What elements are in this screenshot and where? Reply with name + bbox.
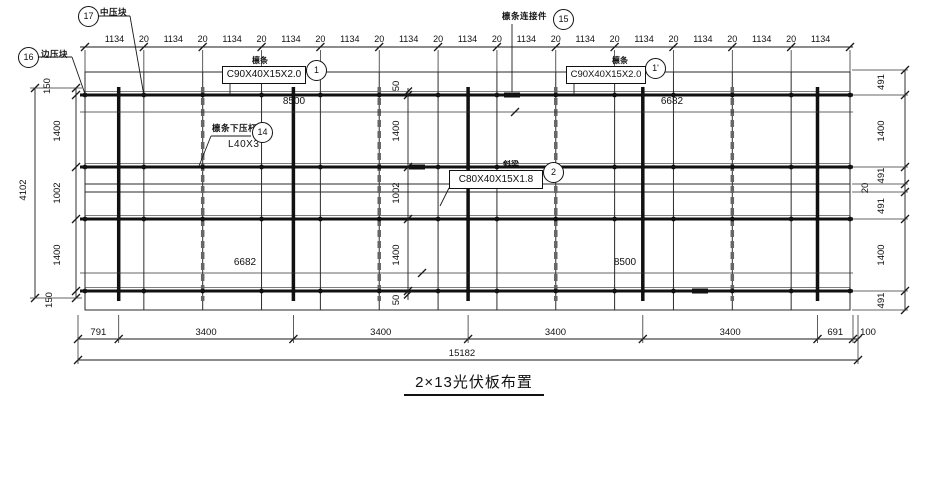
clamp-dot: [318, 93, 323, 98]
dim-label-bottom: 791: [90, 327, 106, 338]
clamp-dot: [291, 217, 296, 222]
clamp-dot: [83, 217, 88, 222]
dim-label-top: 1134: [164, 34, 183, 44]
dim-label-top-gap: 20: [786, 34, 796, 44]
clamp-dot: [495, 289, 500, 294]
clamp-dot: [553, 289, 558, 294]
clamp-dot: [612, 165, 617, 170]
dim-label-top: 1134: [811, 34, 830, 44]
clamp-dot: [466, 217, 471, 222]
purlin-brace-bubble: 14: [252, 122, 273, 143]
leader-purlin-brace: [199, 136, 211, 166]
clamp-dot: [116, 93, 121, 98]
clamp-dot: [815, 93, 820, 98]
dim-label-mid: 50: [391, 295, 402, 306]
clamp-dot: [200, 93, 205, 98]
clamp-dot: [848, 217, 853, 222]
clamp-dot: [116, 289, 121, 294]
rafter-spec: C80X40X15X1.8: [449, 170, 543, 189]
clamp-dot: [291, 289, 296, 294]
clamp-dot: [436, 217, 441, 222]
dim-label-right: 20: [860, 183, 871, 194]
dim-label-right: 491: [876, 198, 887, 214]
dim-label-top-gap: 20: [668, 34, 678, 44]
dim-label-bottom: 3400: [370, 327, 391, 338]
clamp-dot: [436, 289, 441, 294]
clamp-dot: [553, 217, 558, 222]
clamp-dot: [318, 165, 323, 170]
clamp-dot: [466, 93, 471, 98]
dim-label-top-gap: 20: [492, 34, 502, 44]
dim-label-right: 1400: [876, 244, 887, 265]
dim-label-top: 1134: [634, 34, 653, 44]
drawing-title: 2×13光伏板布置: [404, 371, 544, 396]
dim-label-top-gap: 20: [374, 34, 384, 44]
purlin-right-spec: C90X40X15X2.0: [566, 66, 646, 84]
clamp-dot: [377, 217, 382, 222]
dim-label-top-gap: 20: [315, 34, 325, 44]
clamp-dot: [436, 93, 441, 98]
dim-label-bottom: 3400: [720, 327, 741, 338]
dim-label-mid: 1400: [391, 244, 402, 265]
cad-drawing-photovoltaic-layout: 1134113411341134113411341134113411341134…: [0, 0, 925, 478]
dim-label-left: 1002: [52, 182, 63, 203]
purlin-connector-label: 檩条连接件: [502, 10, 547, 22]
clamp-dot: [466, 165, 471, 170]
dim-label-right: 1400: [876, 120, 887, 141]
clamp-dot: [259, 165, 264, 170]
dim-label-top-gap: 20: [727, 34, 737, 44]
clamp-dot: [815, 165, 820, 170]
purlin-brace-spec: L40X3: [228, 139, 259, 150]
dim-label-left: 150: [44, 292, 55, 308]
clamp-dot: [495, 165, 500, 170]
dim-label-left: 150: [42, 78, 53, 94]
purlin-left-bubble: 1: [306, 60, 327, 81]
dim-label-bottom: 100: [860, 327, 876, 338]
dim-label-top: 1134: [340, 34, 359, 44]
clamp-dot: [730, 93, 735, 98]
clamp-dot: [640, 289, 645, 294]
clamp-dot: [640, 93, 645, 98]
dim-label-bottom: 691: [827, 327, 843, 338]
clamp-dot: [730, 289, 735, 294]
mid-clamp-label: 中压块: [100, 6, 127, 18]
dim-label-top: 1134: [693, 34, 712, 44]
mid-clamp-bubble: 17: [78, 6, 99, 27]
clamp-dot: [495, 93, 500, 98]
purlin-connector-symbol: [409, 165, 425, 170]
purlin-right-bubble: 1': [645, 58, 666, 79]
purlin-connector-symbol: [504, 93, 520, 98]
clamp-dot: [141, 289, 146, 294]
clamp-dot: [200, 289, 205, 294]
clamp-dot: [318, 289, 323, 294]
clamp-dot: [789, 165, 794, 170]
clamp-dot: [377, 165, 382, 170]
leader-mid-clamp: [130, 16, 144, 93]
purlin-left-spec: C90X40X15X2.0: [222, 66, 306, 84]
clamp-dot: [116, 217, 121, 222]
clamp-dot: [83, 165, 88, 170]
dim-label-interior: 6682: [234, 257, 257, 268]
clamp-dot: [848, 165, 853, 170]
dim-label-top: 1134: [517, 34, 536, 44]
dim-label-top: 1134: [399, 34, 418, 44]
leader-rafter: [440, 188, 449, 206]
dim-label-interior: 6682: [661, 96, 684, 107]
clamp-dot: [116, 165, 121, 170]
clamp-dot: [815, 217, 820, 222]
purlin-right-label: 檩条: [612, 55, 628, 66]
dim-label-top: 1134: [458, 34, 477, 44]
dim-label-bottom: 3400: [195, 327, 216, 338]
purlin-connector-bubble: 15: [553, 9, 574, 30]
dim-label-top-gap: 20: [610, 34, 620, 44]
clamp-dot: [141, 165, 146, 170]
dim-label-mid: 1400: [391, 120, 402, 141]
dim-label-top: 1134: [576, 34, 595, 44]
clamp-dot: [259, 289, 264, 294]
clamp-dot: [789, 289, 794, 294]
dim-label-top-gap: 20: [551, 34, 561, 44]
dim-label-overall-height: 4102: [18, 179, 29, 200]
purlin-left-label: 檩条: [252, 55, 268, 66]
purlin-brace-label: 檩条下压杆: [212, 122, 257, 134]
dim-label-right: 491: [876, 74, 887, 90]
dim-label-mid: 1002: [391, 182, 402, 203]
clamp-dot: [848, 289, 853, 294]
clamp-dot: [612, 217, 617, 222]
dim-label-top: 1134: [222, 34, 241, 44]
clamp-dot: [612, 93, 617, 98]
clamp-dot: [377, 289, 382, 294]
clamp-dot: [640, 165, 645, 170]
clamp-dot: [671, 165, 676, 170]
clamp-dot: [318, 217, 323, 222]
dim-label-top-gap: 20: [433, 34, 443, 44]
clamp-dot: [495, 217, 500, 222]
clamp-dot: [730, 165, 735, 170]
clamp-dot: [291, 165, 296, 170]
clamp-dot: [200, 217, 205, 222]
clamp-dot: [141, 217, 146, 222]
dim-label-right: 491: [876, 293, 887, 309]
clamp-dot: [789, 93, 794, 98]
clamp-dot: [789, 217, 794, 222]
clamp-dot: [671, 217, 676, 222]
dim-label-top: 1134: [105, 34, 124, 44]
clamp-dot: [259, 217, 264, 222]
dim-label-top-gap: 20: [257, 34, 267, 44]
clamp-dot: [848, 93, 853, 98]
edge-clamp-bubble: 16: [18, 47, 39, 68]
clamp-dot: [640, 217, 645, 222]
clamp-dot: [730, 217, 735, 222]
clamp-dot: [436, 165, 441, 170]
dim-label-right: 491: [876, 168, 887, 184]
clamp-dot: [815, 289, 820, 294]
dim-label-bottom: 3400: [545, 327, 566, 338]
clamp-dot: [200, 165, 205, 170]
dim-label-interior: 8500: [614, 257, 637, 268]
linework-group: 1134113411341134113411341134113411341134…: [18, 34, 909, 364]
drawing-canvas: 1134113411341134113411341134113411341134…: [0, 0, 925, 478]
dim-label-left: 1400: [52, 120, 63, 141]
dim-label-top-gap: 20: [198, 34, 208, 44]
purlin-connector-symbol: [692, 289, 708, 294]
dim-label-interior: 8500: [283, 96, 306, 107]
dim-label-mid: 50: [391, 81, 402, 92]
clamp-dot: [377, 93, 382, 98]
dim-label-top: 1134: [281, 34, 300, 44]
connector-symbols: [409, 93, 708, 294]
dim-label-left: 1400: [52, 244, 63, 265]
clamp-dot: [466, 289, 471, 294]
dim-label-overall-width: 15182: [449, 348, 475, 359]
clamp-dot: [83, 289, 88, 294]
clamp-dot: [553, 93, 558, 98]
rafter-bubble: 2: [543, 162, 564, 183]
clamp-dot: [612, 289, 617, 294]
clamp-dot: [671, 289, 676, 294]
edge-clamp-label: 边压块: [41, 48, 68, 60]
clamp-dot: [259, 93, 264, 98]
clamp-dot: [141, 93, 146, 98]
leader-edge-clamp: [72, 57, 85, 94]
rafter-label: 斜梁: [503, 159, 519, 170]
dim-label-top: 1134: [752, 34, 771, 44]
dim-label-top-gap: 20: [139, 34, 149, 44]
